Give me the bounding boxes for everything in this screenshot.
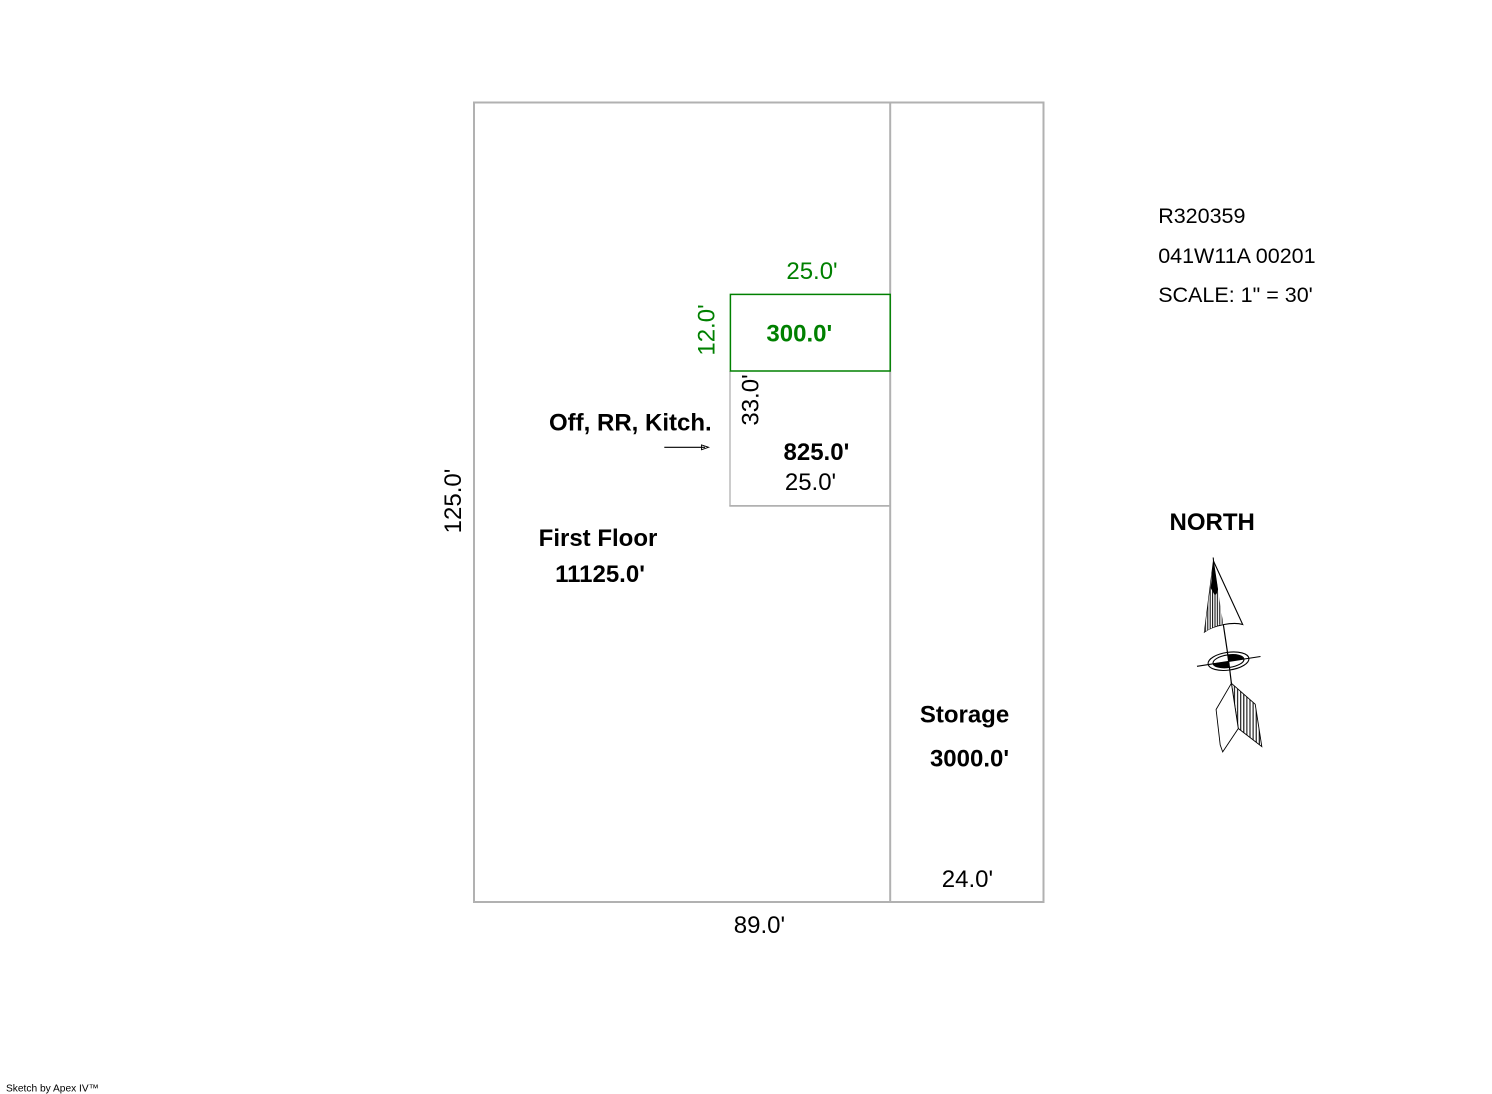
svg-text:125.0': 125.0' [440,469,467,534]
svg-text:NORTH: NORTH [1170,509,1255,536]
svg-text:R320359: R320359 [1158,204,1245,228]
svg-text:SCALE: 1" = 30': SCALE: 1" = 30' [1158,283,1313,307]
svg-text:041W11A 00201: 041W11A 00201 [1158,244,1315,268]
svg-text:33.0': 33.0' [738,374,765,425]
svg-text:11125.0': 11125.0' [555,561,645,588]
svg-text:24.0': 24.0' [942,866,993,893]
svg-text:89.0': 89.0' [734,912,785,939]
svg-text:Storage: Storage [920,701,1009,728]
svg-text:25.0': 25.0' [785,469,836,496]
svg-text:300.0': 300.0' [766,321,832,348]
svg-text:12.0': 12.0' [693,304,720,355]
svg-text:3000.0': 3000.0' [930,746,1009,773]
svg-text:First Floor: First Floor [539,525,658,552]
svg-text:25.0': 25.0' [786,258,837,285]
svg-text:Sketch by Apex IV™: Sketch by Apex IV™ [6,1083,99,1094]
svg-text:Off, RR, Kitch.: Off, RR, Kitch. [549,409,712,436]
svg-text:825.0': 825.0' [784,439,850,466]
